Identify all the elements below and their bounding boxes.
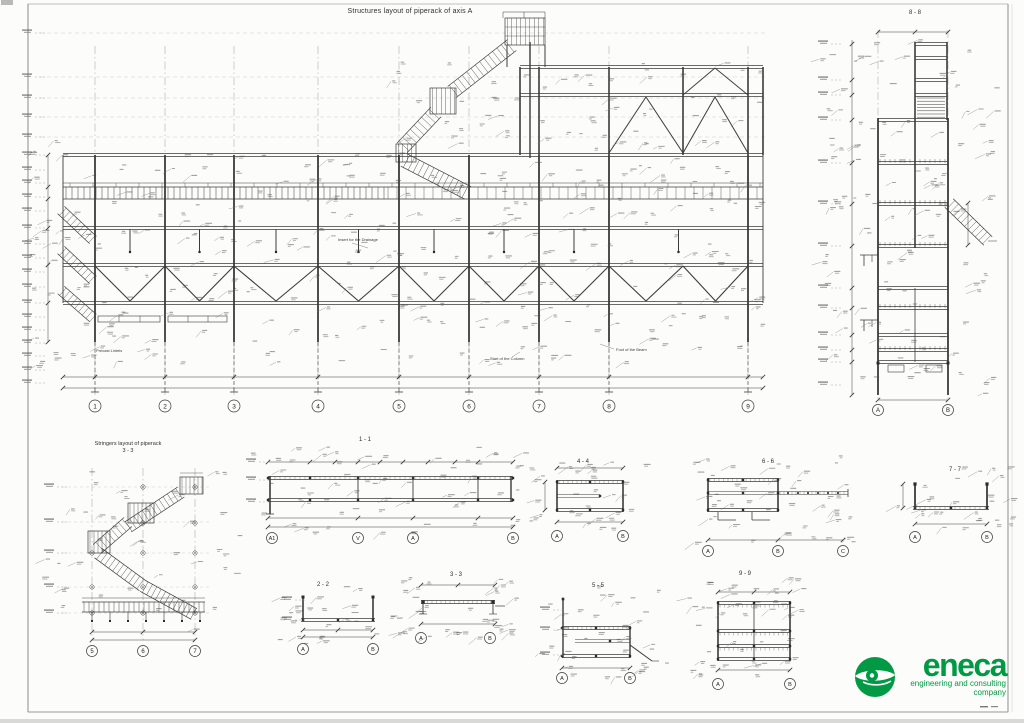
section-6-6-drawing (706, 478, 848, 542)
section-1-1-title: 1 - 1 (330, 437, 400, 443)
section-4-4-title: 4 - 4 (548, 459, 618, 465)
grid-bubble-label: 5 (90, 649, 94, 655)
grid-bubble-label: 4 (316, 403, 320, 410)
grid-bubble-label: B (776, 549, 780, 555)
grid-bubble-label: A (560, 676, 564, 682)
grid-bubble-label: 1 (93, 403, 97, 410)
drawing-sheet: 123456789ABA1VABABABCABABABABAB567 Struc… (0, 0, 1024, 723)
sheet-title: Structures layout of piperack of axis A (300, 8, 520, 15)
section-3-3-title: 3 - 3 (421, 572, 491, 578)
stringers-title: Stringers layout of piperack 3 - 3 (60, 441, 196, 455)
grid-bubble-label: B (621, 534, 625, 540)
grid-bubble-label: A (913, 535, 917, 541)
grid-bubble-label: 7 (537, 403, 541, 410)
section-9-9-bubbles: AB (713, 679, 796, 690)
grid-bubble-label: B (371, 647, 375, 653)
grid-bubble-label: 6 (467, 403, 471, 410)
grid-bubble-label: A (301, 647, 305, 653)
section-7-7-bubbles: AB (910, 532, 993, 543)
tower-grid-bubbles: AB (873, 405, 954, 416)
section-6-6-bubbles: ABC (703, 546, 849, 557)
section-1-1-bubbles: A1VAB (267, 533, 519, 544)
callout-drainage-insert: Insert for the Drainage (338, 237, 378, 242)
eneca-logo-icon (853, 655, 897, 699)
stringers-plan-drawing (62, 468, 210, 642)
section-9-9-title: 9 - 9 (710, 571, 780, 577)
grid-bubble-label: 2 (163, 403, 167, 410)
grid-bubble-label: C (841, 549, 845, 555)
eneca-logo-tagline2: company (901, 689, 1006, 697)
eneca-logo: eneca engineering and consulting company (845, 650, 1008, 702)
stringers-title-line2: 3 - 3 (60, 448, 196, 455)
section-7-7-title: 7 - 7 (920, 467, 990, 473)
main-grid-bubbles: 123456789 (89, 400, 754, 412)
section-2-2-bubbles: AB (298, 644, 379, 655)
grid-bubble-label: 6 (141, 649, 145, 655)
callout-column-start: Start of the Column (490, 356, 524, 361)
section-4-4-bubbles: AB (552, 531, 629, 542)
grid-bubble-label: B (946, 408, 950, 414)
grid-bubble-label: A (706, 549, 710, 555)
grid-bubble-label: A (876, 408, 880, 414)
callout-precast-lintels: Precast Lintels (96, 348, 122, 353)
grid-bubble-label: B (488, 636, 492, 642)
stringers-grid-bubbles: 567 (87, 646, 201, 657)
grid-bubble-label: 7 (193, 649, 197, 655)
section-1-1-drawing (246, 458, 515, 529)
section-2-2-title: 2 - 2 (288, 582, 358, 588)
section-5-5-bubbles: AB (557, 673, 636, 684)
grid-bubble-label: 5 (397, 403, 401, 410)
grid-bubble-label: A (555, 534, 559, 540)
section-7-7-drawing (901, 482, 989, 526)
grid-bubble-label: 8 (607, 403, 611, 410)
grid-bubble-label: B (628, 676, 632, 682)
section-5-5-title: 5 - 5 (563, 583, 633, 589)
tower-section-title: 8 - 8 (880, 10, 950, 16)
grid-bubble-label: B (788, 682, 792, 688)
grid-bubble-label: A1 (269, 536, 276, 542)
grid-bubble-label: V (356, 536, 360, 542)
grid-bubble-label: 3 (232, 403, 236, 410)
grid-bubble-label: 9 (746, 403, 750, 410)
main-level-markers (22, 29, 46, 383)
scan-artifacts (0, 0, 1024, 723)
drawing-sheet-svg: 123456789ABA1VABABABCABABABABAB567 (0, 0, 1024, 723)
section-6-6-title: 6 - 6 (733, 459, 803, 465)
callout-beam-foot: Foot of the Beam (616, 347, 647, 352)
tower-level-markers (818, 40, 842, 385)
section-2-2-drawing (282, 596, 375, 640)
stringers-level-markers (44, 483, 68, 613)
grid-bubble-label: A (716, 682, 720, 688)
stringers-title-line1: Stringers layout of piperack (60, 441, 196, 448)
tower-section-drawing (850, 30, 997, 402)
grid-bubble-label: A (411, 536, 415, 542)
grid-bubble-label: B (511, 536, 515, 542)
main-elevation-drawing (40, 12, 766, 398)
annotation-texture (25, 39, 1018, 684)
eneca-logo-name: eneca (901, 651, 1006, 680)
grid-bubble-label: B (985, 535, 989, 541)
